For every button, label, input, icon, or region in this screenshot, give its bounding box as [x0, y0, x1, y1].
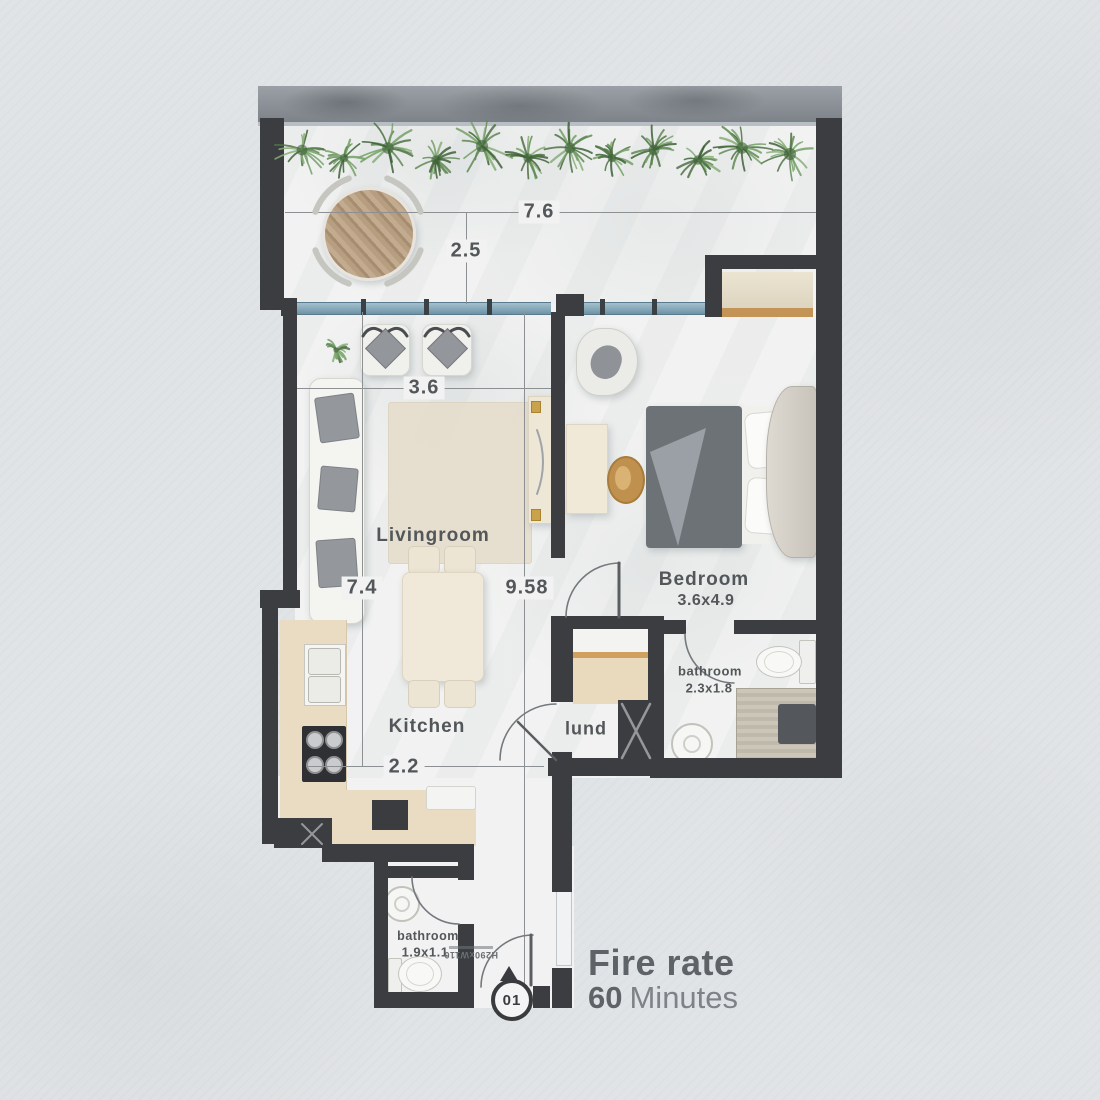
fire-rating-unit: Minutes: [629, 980, 738, 1015]
hall-closet: [573, 652, 648, 704]
glass-mullion: [652, 299, 657, 315]
wall-segment: [705, 255, 820, 269]
ensuite-bathroom-size-label: 2.3x1.8: [686, 681, 733, 696]
entry-door-panel: [556, 890, 572, 966]
entry-bathroom-label: bathroom: [397, 929, 459, 943]
entry-door-spec: H290xW110: [436, 946, 506, 960]
chair-seat: [586, 341, 625, 383]
balcony-round-table: [322, 187, 416, 281]
sink-basin: [308, 648, 341, 675]
dimension-label-balcony-depth: 2.5: [446, 240, 487, 263]
floor-plan-page: 7.6 2.5 3.6 7.4 9.58 2.2 Livingroom Kitc…: [0, 0, 1100, 1100]
stove-burner: [306, 756, 324, 774]
wall-segment: [552, 968, 572, 1008]
stove-burner: [325, 731, 343, 749]
wall-segment: [734, 620, 818, 634]
sink-icon: [384, 886, 420, 922]
entry-door-spec-text: H290xW110: [444, 950, 498, 960]
bedroom-size-label: 3.6x4.9: [678, 592, 735, 610]
kitchen-label: Kitchen: [389, 716, 466, 738]
armchair-cushion: [365, 328, 406, 369]
wall-segment: [551, 312, 565, 558]
kitchen-counter-sink: [426, 786, 476, 810]
livingroom-label: Livingroom: [376, 525, 489, 547]
armchair-cushion: [427, 328, 468, 369]
wall-segment: [322, 844, 474, 862]
fire-rating-block: Fire rate 60Minutes: [588, 944, 738, 1014]
sofa-cushion: [317, 465, 359, 512]
wall-segment: [374, 858, 388, 1008]
dimension-label-living-width: 3.6: [404, 377, 445, 400]
wall-segment: [388, 866, 466, 878]
bedroom-label: Bedroom: [659, 569, 749, 591]
entry-door-spec-subtext: [449, 946, 493, 949]
shower-mat: [778, 704, 816, 744]
door-knob: [531, 401, 541, 413]
unit-number: 01: [503, 992, 522, 1009]
wall-segment: [650, 758, 842, 778]
dimension-line: [524, 312, 525, 1004]
kitchen-sink: [304, 644, 346, 706]
dimension-label-kitchen-width: 2.2: [384, 756, 425, 779]
wall-segment: [533, 986, 550, 1008]
bedroom-desk: [566, 424, 608, 514]
ensuite-bathroom-label: bathroom: [678, 664, 742, 679]
wall-segment: [458, 924, 474, 1008]
laundry-label: lund: [565, 719, 607, 740]
wall-segment: [648, 616, 664, 776]
dimension-label-living-depth: 7.4: [342, 577, 383, 600]
bed-duvet: [646, 406, 742, 548]
unit-number-marker: 01: [491, 979, 533, 1021]
dimension-label-unit-depth: 9.58: [501, 577, 554, 600]
glass-mullion: [487, 299, 492, 315]
wall-segment: [262, 598, 278, 844]
dining-table: [402, 572, 484, 682]
bedroom-wardrobe: [722, 272, 813, 310]
toilet-seat: [406, 962, 434, 986]
dining-chair: [408, 546, 440, 574]
sink-basin: [683, 735, 701, 753]
bedroom-wardrobe-shelf: [722, 308, 813, 317]
sofa-cushion: [314, 392, 360, 443]
bedroom-pouf: [607, 456, 645, 504]
armchair: [360, 324, 410, 376]
glass-mullion: [600, 299, 605, 315]
dimension-label-balcony-width: 7.6: [519, 201, 560, 224]
stove-burner: [325, 756, 343, 774]
wall-segment: [283, 302, 297, 600]
stove-icon: [302, 726, 346, 782]
glass-mullion: [424, 299, 429, 315]
dining-chair: [444, 680, 476, 708]
wall-segment: [648, 620, 686, 634]
toilet-seat: [764, 651, 794, 673]
dimension-line: [362, 312, 363, 766]
sink-basin: [308, 676, 341, 703]
wall-segment: [260, 118, 284, 310]
wall-segment: [548, 758, 652, 776]
fire-rating-title: Fire rate: [588, 944, 738, 982]
wall-segment: [816, 118, 842, 778]
stove-burner: [306, 731, 324, 749]
pouf-top: [615, 466, 631, 490]
door-knob: [531, 509, 541, 521]
dining-chair: [444, 546, 476, 574]
toilet-icon: [756, 646, 802, 678]
dining-chair: [408, 680, 440, 708]
toilet-icon: [398, 956, 442, 992]
armchair: [422, 324, 472, 376]
sink-basin: [394, 896, 410, 912]
bed-headboard: [766, 386, 818, 558]
wall-segment: [558, 616, 652, 629]
kitchen-cooktop: [372, 800, 408, 830]
fire-rating-value: 60: [588, 980, 622, 1015]
dimension-line: [306, 766, 544, 767]
hall-closet-opening: [573, 629, 648, 652]
balcony-parapet-wall: [258, 86, 842, 126]
